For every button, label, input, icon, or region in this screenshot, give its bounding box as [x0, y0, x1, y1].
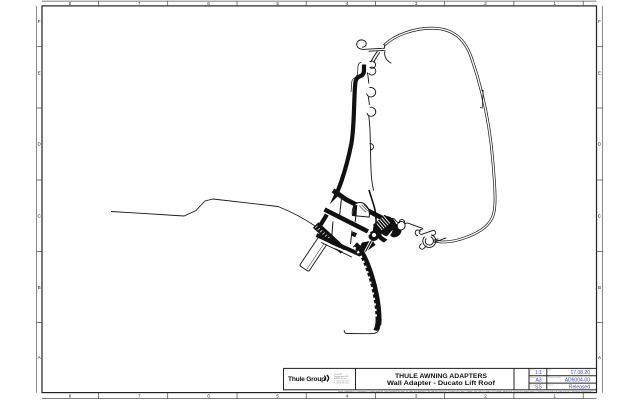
svg-text:THIS DRAWING CONTAINS CONFIDEN: THIS DRAWING CONTAINS CONFIDENTIAL INFOR…: [338, 390, 594, 393]
svg-text:SS: SS: [535, 385, 542, 391]
svg-text:F: F: [38, 19, 41, 24]
svg-text:3: 3: [415, 1, 418, 6]
svg-text:5: 5: [276, 394, 279, 399]
svg-text:F +32 56 52 92 12: F +32 56 52 92 12: [334, 383, 349, 385]
svg-text:E: E: [598, 71, 601, 76]
svg-text:B: B: [38, 285, 41, 290]
svg-text:1:1: 1:1: [535, 370, 542, 376]
svg-text:Released: Released: [569, 385, 590, 391]
svg-text:A3: A3: [535, 378, 541, 384]
svg-text:1: 1: [553, 1, 556, 6]
svg-text:4: 4: [346, 394, 349, 399]
svg-text:4: 4: [346, 1, 349, 6]
svg-text:1: 1: [553, 394, 556, 399]
svg-text:Scale: Scale: [530, 370, 535, 372]
svg-text:6: 6: [207, 1, 210, 6]
svg-text:Format: Format: [530, 376, 536, 379]
svg-text:AD6004-00: AD6004-00: [565, 378, 591, 384]
svg-text:2: 2: [484, 394, 487, 399]
svg-text:Drawing number: Drawing number: [548, 377, 562, 379]
svg-text:7: 7: [138, 394, 141, 399]
svg-text:7: 7: [138, 1, 141, 6]
svg-text:8: 8: [69, 1, 72, 6]
svg-text:17.08.20: 17.08.20: [571, 370, 591, 376]
svg-text:6: 6: [207, 394, 210, 399]
svg-text:5: 5: [276, 1, 279, 6]
svg-text:B: B: [598, 285, 601, 290]
svg-text:F: F: [598, 19, 601, 24]
svg-text:Date: Date: [548, 369, 552, 372]
svg-text:3: 3: [415, 394, 418, 399]
svg-text:Status: Status: [548, 383, 553, 386]
svg-text:2: 2: [484, 1, 487, 6]
svg-text:8: 8: [69, 394, 72, 399]
svg-text:Thule Group: Thule Group: [288, 376, 325, 383]
svg-text:E: E: [38, 71, 41, 76]
svg-text:Drawn: Drawn: [530, 384, 535, 386]
svg-text:Wall Adapter - Ducato Lift Roo: Wall Adapter - Ducato Lift Roof: [387, 380, 496, 387]
